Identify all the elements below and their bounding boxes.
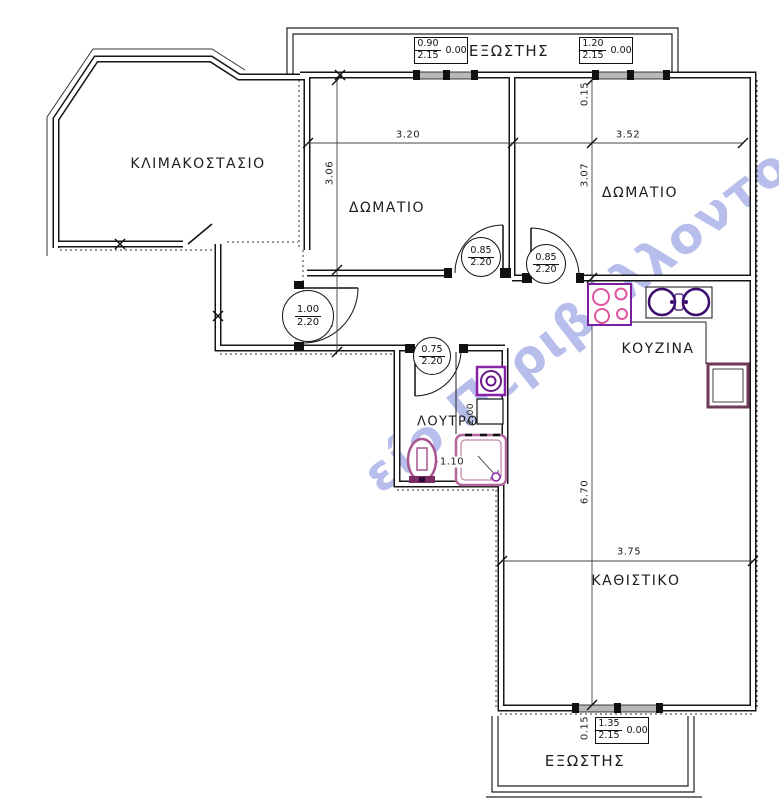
dim-bedroom1-width: 3.20: [396, 130, 420, 141]
floor-plan: είο Περιβάλλοντος: [0, 0, 779, 804]
door-bedroom2-width: 0.85: [533, 253, 558, 265]
door-bedroom1-height: 2.20: [468, 258, 493, 269]
window-box-top-left: 0.902.15 0.00: [414, 37, 468, 64]
window-top-left-height: 2.15: [415, 51, 440, 62]
door-tag-bedroom1: 0.852.20: [461, 237, 501, 277]
window-top-right-sill: 0.00: [611, 45, 632, 56]
dim-bedroom2-height: 3.07: [580, 163, 591, 187]
room-label-bedroom1: ΔΩΜΑΤΙΟ: [349, 200, 425, 216]
window-bottom-sill: 0.00: [627, 725, 648, 736]
windows: [413, 70, 670, 713]
duct-shaft: [477, 399, 503, 424]
toilet: [408, 439, 436, 483]
door-entry-width: 1.00: [295, 304, 321, 317]
room-label-balcony-bottom: ΕΞΩΣΤΗΣ: [545, 752, 625, 770]
door-swings: [188, 224, 579, 396]
room-label-stairwell: ΚΛΙΜΑΚΟΣΤΑΣΙΟ: [130, 156, 265, 172]
door-bathroom-width: 0.75: [419, 345, 444, 357]
dim-living-width: 3.75: [617, 547, 641, 558]
floorplan-drawing: [0, 0, 779, 804]
dim-top-offset: 0.15: [580, 82, 591, 106]
door-bedroom2-height: 2.20: [533, 265, 558, 276]
dim-bedroom1-height: 3.06: [325, 161, 336, 185]
window-bottom-height: 2.15: [596, 731, 621, 742]
washing-machine: [477, 367, 505, 395]
dim-bedroom2-width: 3.52: [616, 130, 640, 141]
kitchen-sink: [646, 287, 712, 318]
dim-shower-width: 1.10: [438, 457, 466, 468]
dimension-lines: [308, 80, 753, 705]
door-bathroom-height: 2.20: [419, 357, 444, 368]
window-top-right-height: 2.15: [580, 51, 605, 62]
stove: [588, 284, 631, 325]
dotted-lines: [60, 80, 757, 714]
door-bedroom1-width: 0.85: [468, 246, 493, 258]
door-tag-entry: 1.002.20: [282, 290, 334, 342]
room-label-balcony-top: ΕΞΩΣΤΗΣ: [469, 42, 549, 60]
window-box-top-right: 1.202.15 0.00: [579, 37, 633, 64]
room-label-living: ΚΑΘΙΣΤΙΚΟ: [591, 573, 680, 589]
room-label-kitchen: ΚΟΥΖΙΝΑ: [621, 341, 694, 357]
dim-living-height: 6.70: [580, 480, 591, 504]
window-box-bottom: 1.352.15 0.00: [595, 717, 649, 744]
fridge: [708, 364, 748, 407]
door-tag-bedroom2: 0.852.20: [526, 244, 566, 284]
room-label-bedroom2: ΔΩΜΑΤΙΟ: [602, 185, 678, 201]
door-tag-bathroom: 0.752.20: [413, 337, 451, 375]
dim-bottom-offset: 0.15: [580, 716, 591, 740]
door-entry-height: 2.20: [295, 317, 321, 329]
window-top-left-sill: 0.00: [446, 45, 467, 56]
stairwell-outer-outline: [47, 49, 245, 256]
dim-duct-depth: 2.00: [466, 403, 476, 425]
